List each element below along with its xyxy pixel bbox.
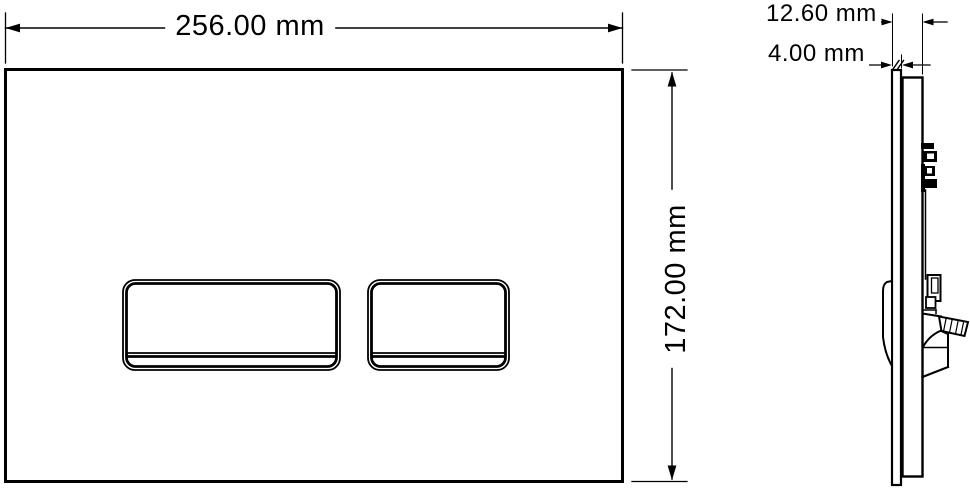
mechanism-box xyxy=(923,331,949,377)
drawing-linework xyxy=(0,0,970,490)
side-view xyxy=(883,70,968,485)
arrowhead-left xyxy=(902,62,913,69)
plate-outline xyxy=(6,70,623,482)
arrowhead-up xyxy=(668,72,677,87)
side-frame xyxy=(903,78,923,477)
small-flush-button xyxy=(368,280,509,370)
technical-drawing-canvas: 256.00 mm 172.00 mm 12.60 mm 4.00 mm xyxy=(0,0,970,490)
arrowhead-left xyxy=(923,19,934,26)
large-flush-button xyxy=(123,280,340,370)
arrowhead-right xyxy=(881,62,892,69)
depth-dimension-label: 12.60 mm xyxy=(762,1,881,27)
actuator-lever xyxy=(923,314,969,348)
arrowhead-right xyxy=(608,24,623,33)
thickness-dimension-label: 4.00 mm xyxy=(764,41,869,67)
button-protrusion xyxy=(883,281,892,366)
width-dimension-label: 256.00 mm xyxy=(165,11,335,43)
arrowhead-down xyxy=(668,466,677,481)
arrowhead-left xyxy=(6,24,21,33)
hook-assembly xyxy=(923,275,941,314)
front-view xyxy=(6,70,623,482)
arrowhead-right xyxy=(882,19,893,26)
side-panel xyxy=(892,70,901,485)
height-dimension-label: 172.00 mm xyxy=(661,190,693,368)
